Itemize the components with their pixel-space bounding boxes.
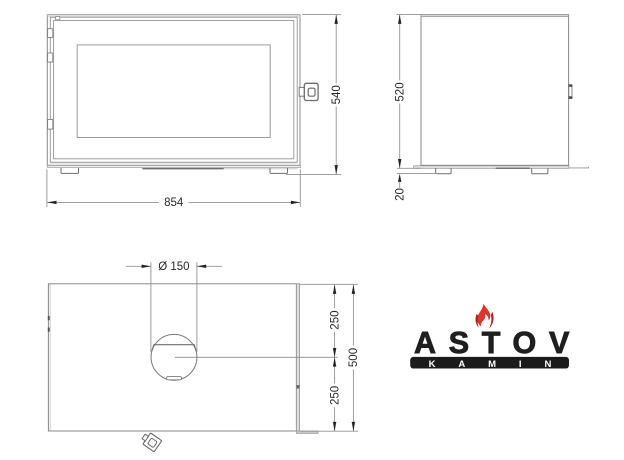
svg-text:ASTOV: ASTOV (414, 326, 582, 360)
svg-text:520: 520 (394, 82, 406, 101)
svg-text:854: 854 (164, 197, 184, 209)
svg-text:250: 250 (329, 386, 341, 405)
svg-text:250: 250 (329, 311, 341, 330)
svg-text:540: 540 (331, 85, 343, 104)
svg-text:500: 500 (348, 348, 360, 367)
svg-text:20: 20 (394, 188, 406, 201)
svg-text:KAMIN: KAMIN (429, 359, 575, 370)
svg-text:Ø 150: Ø 150 (158, 261, 189, 273)
